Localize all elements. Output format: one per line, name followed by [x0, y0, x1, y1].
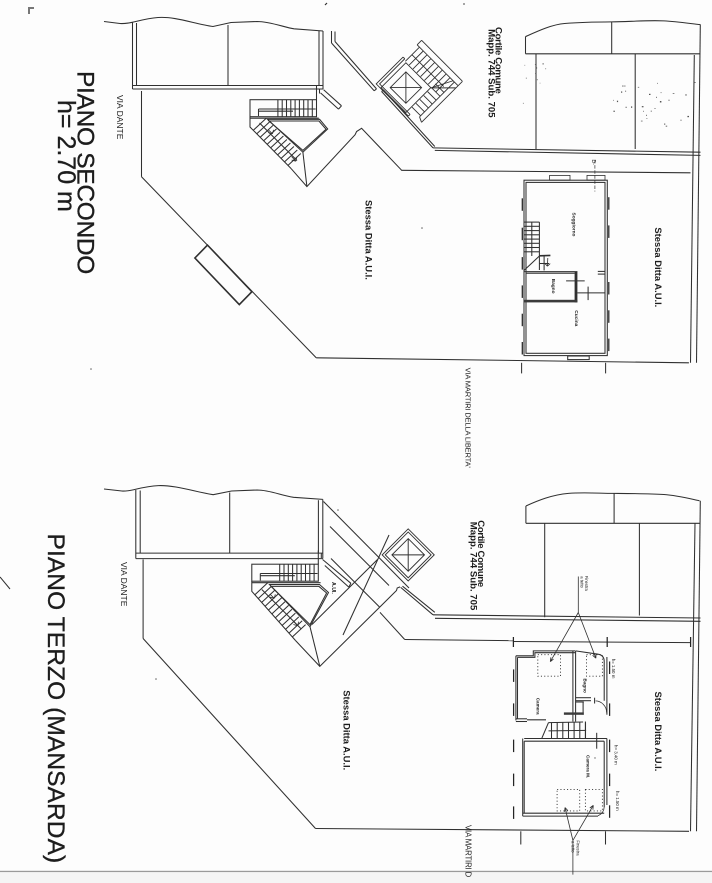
svg-text:Bagno: Bagno: [583, 679, 588, 693]
svg-text:VIA MARTIRI DELLA LIBERTA': VIA MARTIRI DELLA LIBERTA': [463, 368, 472, 469]
svg-text:Cucina: Cucina: [573, 310, 579, 326]
svg-text:h= 1.50 m: h= 1.50 m: [611, 659, 616, 679]
svg-text:VIA DANTE: VIA DANTE: [115, 95, 125, 140]
svg-text:A.UI.: A.UI.: [330, 582, 336, 594]
svg-text:Camera: Camera: [535, 698, 540, 715]
svg-text:Soggiorno: Soggiorno: [570, 213, 576, 237]
svg-text:Mapp. 744 Sub. 705: Mapp. 744 Sub. 705: [468, 522, 479, 611]
svg-text:a tetto: a tetto: [579, 576, 584, 588]
svg-text:VIA DANTE: VIA DANTE: [119, 562, 129, 607]
svg-text:Stessa Ditta A.U.I.: Stessa Ditta A.U.I.: [653, 227, 664, 307]
svg-text:Stessa Ditta A.U.I.: Stessa Ditta A.U.I.: [653, 692, 664, 772]
svg-text:Camera M.: Camera M.: [586, 755, 591, 778]
svg-text:Stessa Ditta A.U.I.: Stessa Ditta A.U.I.: [363, 200, 374, 280]
svg-text:h= 1.50 m: h= 1.50 m: [615, 791, 620, 811]
svg-text:h= 2.70 m: h= 2.70 m: [52, 100, 80, 212]
svg-text:PIANO TERZO (MANSARDA): PIANO TERZO (MANSARDA): [42, 534, 69, 864]
svg-text:VIA MARTIRI D: VIA MARTIRI D: [463, 825, 472, 878]
svg-text:h= 3.40 m: h= 3.40 m: [613, 745, 618, 765]
svg-text:D-: D-: [590, 160, 596, 166]
svg-text:Stessa Ditta A.U.I.: Stessa Ditta A.U.I.: [342, 690, 353, 770]
svg-text:Bagno: Bagno: [550, 279, 556, 294]
svg-text:Mapp. 744 Sub. 705: Mapp. 744 Sub. 705: [485, 29, 496, 118]
